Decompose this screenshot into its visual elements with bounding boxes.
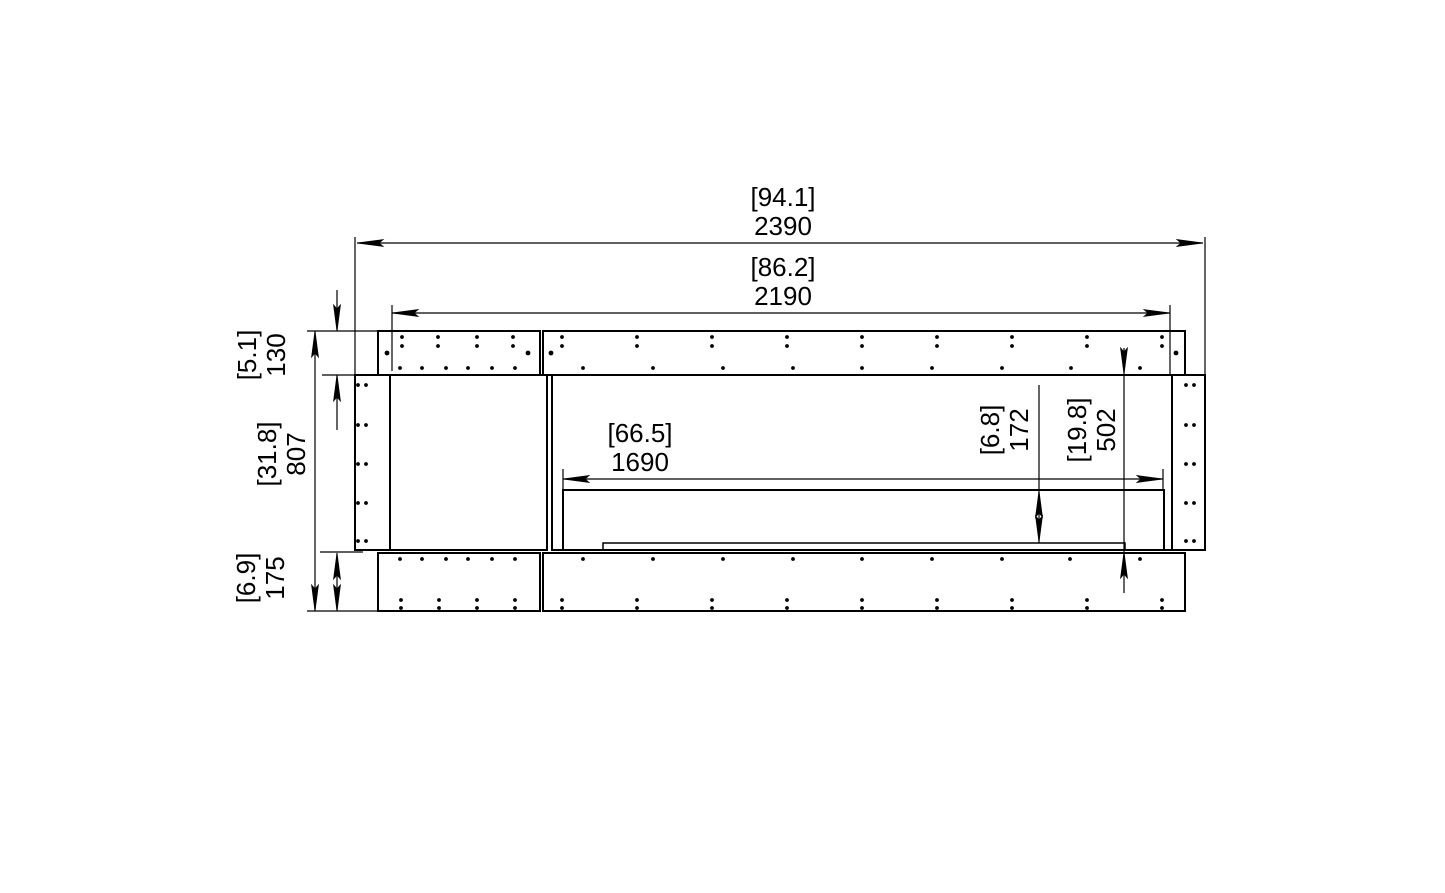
- top-panel-left-hole-pairs-hole: [475, 344, 479, 348]
- bottom-panel-right-hole-pairs-hole: [710, 606, 714, 610]
- side-panel-left-hole-pairs-hole: [364, 462, 368, 466]
- side-panel-right: [1172, 375, 1205, 550]
- top-panel-left-bottom-holes-hole: [490, 366, 494, 370]
- bottom-panel-right-hole-pairs-hole: [935, 598, 939, 602]
- side-panel-right-hole-pairs-hole: [1192, 383, 1196, 387]
- top-panel-left-hole-pairs-hole: [400, 344, 404, 348]
- cabinet-section: [390, 375, 547, 550]
- top-panel-right-bottom-holes-hole: [860, 366, 864, 370]
- bottom-panel-right-hole-pairs-hole: [635, 606, 639, 610]
- top-panel-right-hole-pairs-hole: [1010, 335, 1014, 339]
- bottom-panel-right-hole-pairs-hole: [560, 606, 564, 610]
- side-panel-right-hole-pairs-hole: [1192, 501, 1196, 505]
- top-panel-right-bottom-holes-hole: [1000, 366, 1004, 370]
- side-panel-left-hole-pairs-hole: [356, 501, 360, 505]
- dim-overall-width-mm: 2390: [754, 212, 812, 241]
- bottom-panel-left-top-holes-hole: [513, 557, 517, 561]
- bottom-panel-right-hole-pairs-hole: [1160, 598, 1164, 602]
- side-panel-left-hole-pairs-hole: [364, 539, 368, 543]
- dim-label-overall-width: [94.1] 2390: [713, 183, 853, 241]
- top-panel-left-hole-pairs-hole: [436, 335, 440, 339]
- top-panel-right-hole-pairs-hole: [1085, 335, 1089, 339]
- bottom-panel-left-top-holes-hole: [490, 557, 494, 561]
- side-panel-right-hole-pairs-hole: [1184, 423, 1188, 427]
- bottom-panel-left-hole-pairs-hole: [475, 606, 479, 610]
- drawing-linework: [0, 0, 1445, 893]
- top-panel-left-hole-pairs-hole: [400, 335, 404, 339]
- bottom-panel-right-hole-pairs-hole: [1010, 606, 1014, 610]
- bottom-panel-right-hole-pairs-hole: [860, 598, 864, 602]
- dim-body-height-inches: [19.8]: [1063, 397, 1092, 462]
- dim-internal-width-inches: [86.2]: [750, 253, 815, 282]
- dim-arrowhead-right: [1137, 476, 1163, 483]
- top-panel-right-hole-pairs-hole: [935, 335, 939, 339]
- dim-internal-width-mm: 2190: [754, 282, 812, 311]
- bottom-panel-left-hole-pairs-hole: [437, 606, 441, 610]
- bottom-panel-left-hole-pairs-hole: [399, 598, 403, 602]
- dim-label-opening-height: [6.8] 172: [976, 388, 1034, 472]
- top-panel-right-hole-pairs-hole: [560, 335, 564, 339]
- dim-base-height-inches: [6.9]: [232, 553, 261, 604]
- top-panel-right-hole-pairs-hole: [710, 335, 714, 339]
- bottom-panel-right-top-holes-hole: [581, 557, 585, 561]
- bottom-panel-left-hole-pairs-hole: [437, 598, 441, 602]
- bottom-panel-right-hole-pairs-hole: [635, 598, 639, 602]
- top-panel-right-bottom-holes-hole: [581, 366, 585, 370]
- side-panel-left-hole-pairs-hole: [364, 501, 368, 505]
- top-panel-left-bottom-holes-hole: [444, 366, 448, 370]
- top-panel-right-hole-pairs-hole: [785, 344, 789, 348]
- top-panel-right-hole-pairs-hole: [1010, 344, 1014, 348]
- side-panel-left-hole-pairs-hole: [364, 383, 368, 387]
- dim-arrowhead-right: [1177, 240, 1203, 247]
- top-panel-right-hole-pairs-hole: [635, 344, 639, 348]
- bottom-panel-right-hole-pairs-hole: [935, 606, 939, 610]
- dim-arrowhead-down: [334, 585, 341, 611]
- side-panel-left-hole-pairs-hole: [356, 383, 360, 387]
- bottom-panel-left: [378, 553, 540, 611]
- dim-label-internal-width: [86.2] 2190: [713, 253, 853, 311]
- bottom-panel-right-hole-pairs-hole: [1010, 598, 1014, 602]
- dim-label-body-height: [19.8] 502: [1063, 388, 1121, 472]
- dim-label-firebox-width: [66.5] 1690: [570, 419, 710, 477]
- bottom-panel-right-top-holes-hole: [651, 557, 655, 561]
- side-panel-right-hole-pairs-hole: [1184, 501, 1188, 505]
- dim-base-height-mm: 175: [261, 556, 290, 599]
- top-panel-left-bottom-holes-hole: [513, 366, 517, 370]
- dim-arrowhead-up: [334, 375, 341, 401]
- bottom-panel-left-top-holes-hole: [444, 557, 448, 561]
- bottom-panel-right-top-holes-hole: [1138, 557, 1142, 561]
- side-panel-right-hole-pairs-hole: [1192, 539, 1196, 543]
- top-panel-right-hole-pairs-hole: [1160, 344, 1164, 348]
- dim-overall-height-inches: [31.8]: [253, 421, 282, 486]
- top-panel-right-bottom-holes-hole: [930, 366, 934, 370]
- dim-arrowhead-left: [357, 240, 383, 247]
- dim-arrowhead-down: [312, 585, 319, 611]
- top-panel-left-bottom-holes-hole: [420, 366, 424, 370]
- top-panel-right-hole-pairs-hole: [1085, 344, 1089, 348]
- top-panel-left-hole-pairs-hole: [511, 335, 515, 339]
- top-panel-right-hole-pairs-hole: [710, 344, 714, 348]
- top-panel-left-mid-holes-hole: [526, 351, 531, 356]
- side-panel-left: [355, 375, 390, 550]
- top-panel-right-hole-pairs-hole: [785, 335, 789, 339]
- side-panel-left-hole-pairs-hole: [356, 539, 360, 543]
- top-panel-left-hole-pairs-hole: [436, 344, 440, 348]
- bottom-panel-right-hole-pairs-hole: [1160, 606, 1164, 610]
- top-panel-right-hole-pairs-hole: [635, 335, 639, 339]
- side-panel-left-hole-pairs-hole: [356, 462, 360, 466]
- bottom-panel-right-top-holes-hole: [721, 557, 725, 561]
- bottom-panel-right-hole-pairs-hole: [1085, 598, 1089, 602]
- dim-opening-height-inches: [6.8]: [976, 405, 1005, 456]
- bottom-panel-left-top-holes-hole: [466, 557, 470, 561]
- bottom-panel-left-hole-pairs-hole: [513, 606, 517, 610]
- dim-arrowhead-down: [334, 305, 341, 331]
- top-panel-right-hole-pairs-hole: [1160, 335, 1164, 339]
- dim-body-height-mm: 502: [1092, 408, 1121, 451]
- bottom-panel-right-hole-pairs-hole: [1085, 606, 1089, 610]
- side-panel-right-hole-pairs-hole: [1192, 462, 1196, 466]
- top-panel-left-mid-holes-hole: [385, 351, 390, 356]
- top-panel-left-bottom-holes-hole: [466, 366, 470, 370]
- bottom-panel-right-top-holes-hole: [1000, 557, 1004, 561]
- technical-drawing-canvas: [94.1] 2390 [86.2] 2190 [66.5] 1690 [5.1…: [0, 0, 1445, 893]
- bottom-panel-left-top-holes-hole: [420, 557, 424, 561]
- top-panel-right-mid-holes-hole: [549, 351, 554, 356]
- dim-arrowhead-up: [1121, 552, 1128, 578]
- dim-overall-height-mm: 807: [282, 432, 311, 475]
- bottom-panel-right-hole-pairs-hole: [860, 606, 864, 610]
- bottom-panel-right-top-holes-hole: [930, 557, 934, 561]
- bottom-panel-right-top-holes-hole: [791, 557, 795, 561]
- firebox-opening: [563, 490, 1164, 550]
- side-panel-right-hole-pairs-hole: [1184, 462, 1188, 466]
- top-panel-left-hole-pairs-hole: [475, 335, 479, 339]
- dim-top-panel-height-inches: [5.1]: [233, 330, 262, 381]
- top-panel-right-bottom-holes-hole: [791, 366, 795, 370]
- bottom-panel-right: [543, 553, 1185, 611]
- top-panel-left-bottom-holes-hole: [398, 366, 402, 370]
- bottom-panel-right-top-holes-hole: [860, 557, 864, 561]
- side-panel-right-hole-pairs-hole: [1192, 423, 1196, 427]
- dim-label-overall-height: [31.8] 807: [253, 412, 311, 496]
- dim-overall-width-inches: [94.1]: [750, 183, 815, 212]
- bottom-panel-left-hole-pairs-hole: [513, 598, 517, 602]
- bottom-panel-right-top-holes-hole: [1068, 557, 1072, 561]
- dim-label-top-panel-height: [5.1] 130: [233, 313, 291, 397]
- bottom-panel-left-hole-pairs-hole: [475, 598, 479, 602]
- dim-arrowhead-up: [312, 331, 319, 357]
- bottom-panel-right-hole-pairs-hole: [560, 598, 564, 602]
- bottom-panel-left-top-holes-hole: [398, 557, 402, 561]
- top-panel-right-bottom-holes-hole: [721, 366, 725, 370]
- dim-label-base-height: [6.9] 175: [232, 536, 290, 620]
- dim-arrowhead-down: [1036, 516, 1043, 542]
- side-panel-right-hole-pairs-hole: [1184, 383, 1188, 387]
- top-panel-left-hole-pairs-hole: [511, 344, 515, 348]
- top-panel-right-hole-pairs-hole: [935, 344, 939, 348]
- bottom-panel-left-hole-pairs-hole: [399, 606, 403, 610]
- dim-arrowhead-up: [1036, 491, 1043, 517]
- dim-arrowhead-right: [1144, 310, 1170, 317]
- top-panel-right-mid-holes-hole: [1174, 351, 1179, 356]
- bottom-panel-right-hole-pairs-hole: [785, 598, 789, 602]
- bottom-panel-right-hole-pairs-hole: [785, 606, 789, 610]
- top-panel-right-bottom-holes-hole: [1069, 366, 1073, 370]
- top-panel-right-bottom-holes-hole: [651, 366, 655, 370]
- dim-arrowhead-down: [1121, 348, 1128, 374]
- side-panel-left-hole-pairs-hole: [356, 423, 360, 427]
- dim-arrowhead-left: [392, 310, 418, 317]
- top-panel-right-hole-pairs-hole: [860, 335, 864, 339]
- dim-arrowhead-up: [334, 553, 341, 579]
- dim-firebox-width-inches: [66.5]: [607, 419, 672, 448]
- side-panel-left-hole-pairs-hole: [364, 423, 368, 427]
- burner-tray: [603, 543, 1125, 550]
- dim-opening-height-mm: 172: [1005, 408, 1034, 451]
- dim-firebox-width-mm: 1690: [611, 448, 669, 477]
- top-panel-right-hole-pairs-hole: [860, 344, 864, 348]
- side-panel-right-hole-pairs-hole: [1184, 539, 1188, 543]
- bottom-panel-right-hole-pairs-hole: [710, 598, 714, 602]
- top-panel-right-hole-pairs-hole: [560, 344, 564, 348]
- top-panel-right-bottom-holes-hole: [1138, 366, 1142, 370]
- dim-top-panel-height-mm: 130: [262, 333, 291, 376]
